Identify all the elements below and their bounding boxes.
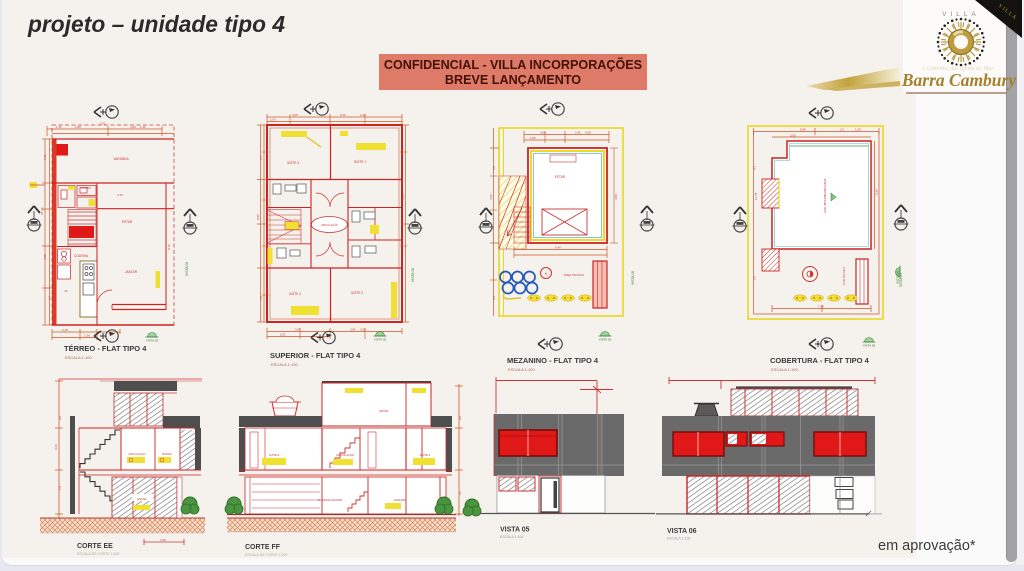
svg-text:1,80: 1,80	[530, 136, 536, 140]
svg-text:2,50: 2,50	[340, 113, 346, 117]
svg-text:11,75: 11,75	[754, 192, 758, 200]
svg-text:ÁREA TÉCNICA: ÁREA TÉCNICA	[564, 272, 585, 277]
svg-text:5,30: 5,30	[875, 189, 879, 195]
svg-text:ESCALA 1:100: ESCALA 1:100	[271, 362, 298, 367]
svg-text:3,10: 3,10	[43, 154, 47, 160]
svg-text:2,15: 2,15	[62, 328, 68, 332]
svg-text:2,9: 2,9	[58, 486, 62, 490]
svg-text:SUÍTE 2: SUÍTE 2	[351, 291, 363, 295]
svg-text:ESTAR: ESTAR	[555, 175, 566, 179]
svg-text:VISTA 06: VISTA 06	[411, 268, 415, 282]
svg-text:2,45: 2,45	[575, 131, 581, 135]
svg-text:K: K	[545, 271, 548, 276]
svg-text:VARANDA: VARANDA	[393, 498, 406, 502]
svg-text:3,1: 3,1	[492, 296, 496, 300]
svg-text:2,8: 2,8	[458, 416, 462, 420]
svg-text:VISTA 02: VISTA 02	[374, 338, 387, 342]
svg-text:2,8: 2,8	[58, 416, 62, 420]
svg-text:MEZANINO - FLAT TIPO 4: MEZANINO - FLAT TIPO 4	[507, 356, 599, 365]
svg-text:VISTA 02: VISTA 02	[146, 339, 159, 343]
svg-text:LAVABO: LAVABO	[81, 186, 91, 190]
svg-text:2,60: 2,60	[790, 134, 796, 138]
svg-text:LAJE TÉCNICA: LAJE TÉCNICA	[841, 266, 846, 285]
svg-text:CORTE EE: CORTE EE	[77, 543, 113, 550]
svg-text:TÉRREO - FLAT TIPO 4: TÉRREO - FLAT TIPO 4	[64, 344, 147, 353]
svg-text:8,05: 8,05	[256, 214, 260, 220]
svg-text:2,3: 2,3	[48, 296, 52, 300]
svg-text:4,50: 4,50	[614, 194, 618, 200]
svg-text:VARANDA: VARANDA	[113, 157, 129, 161]
svg-text:4,10: 4,10	[130, 125, 136, 129]
svg-text:JANTAR: JANTAR	[125, 270, 138, 274]
svg-text:3,30: 3,30	[160, 538, 166, 542]
svg-text:ESCALA 1:100: ESCALA 1:100	[65, 355, 92, 360]
svg-text:VISTA 05: VISTA 05	[599, 338, 612, 342]
svg-text:3,3: 3,3	[259, 156, 263, 160]
svg-text:CIRCULAÇÃO: CIRCULAÇÃO	[336, 452, 355, 457]
svg-text:VISTA 06: VISTA 06	[667, 528, 697, 535]
svg-text:1,15: 1,15	[56, 125, 62, 129]
svg-text:2,02: 2,02	[100, 122, 106, 126]
svg-text:2,90: 2,90	[75, 125, 81, 129]
svg-text:3,9: 3,9	[259, 296, 263, 300]
svg-text:ESCALA DE CORTE 1:100: ESCALA DE CORTE 1:100	[77, 552, 119, 556]
svg-text:SUÍTE 4: SUÍTE 4	[289, 292, 301, 296]
svg-text:3,0: 3,0	[458, 491, 462, 495]
svg-text:8,20: 8,20	[54, 444, 58, 450]
svg-text:SUÍTE 1: SUÍTE 1	[354, 160, 366, 164]
svg-text:SUÍTE 2: SUÍTE 2	[420, 453, 431, 457]
svg-text:COZINHA: COZINHA	[74, 254, 89, 258]
svg-text:1,30: 1,30	[855, 128, 861, 132]
svg-text:VILLA: VILLA	[942, 11, 980, 18]
svg-text:VISTA 05: VISTA 05	[863, 344, 876, 348]
svg-text:4,35: 4,35	[401, 194, 405, 200]
svg-text:4,65: 4,65	[489, 194, 493, 200]
svg-text:3,6: 3,6	[753, 276, 757, 280]
svg-text:5,80: 5,80	[800, 128, 806, 132]
svg-text:10,30: 10,30	[40, 207, 44, 215]
svg-text:VISTA 06: VISTA 06	[896, 271, 900, 284]
svg-text:ESTAR: ESTAR	[379, 409, 388, 413]
svg-text:COBERTURA - FLAT TIPO 4: COBERTURA - FLAT TIPO 4	[770, 356, 870, 365]
svg-text:VISTA 06: VISTA 06	[631, 271, 635, 285]
svg-text:2,0: 2,0	[840, 128, 844, 132]
svg-text:3,05: 3,05	[292, 113, 298, 117]
svg-text:5,40: 5,40	[555, 246, 561, 250]
svg-text:BANHO: BANHO	[162, 452, 171, 456]
svg-text:A5: A5	[64, 289, 68, 293]
svg-text:CORTE FF: CORTE FF	[245, 544, 281, 551]
svg-text:2,80: 2,80	[350, 328, 356, 332]
svg-text:SUÍTE 4: SUÍTE 4	[269, 453, 280, 457]
svg-text:VISTA 05: VISTA 05	[500, 527, 530, 534]
svg-text:COZINHA/JANTAR: COZINHA/JANTAR	[318, 498, 342, 502]
svg-text:ESCALA 1:100: ESCALA 1:100	[500, 535, 523, 539]
svg-text:SUPERIOR - FLAT TIPO 4: SUPERIOR - FLAT TIPO 4	[270, 351, 361, 360]
svg-text:1,30: 1,30	[140, 125, 146, 129]
svg-text:7,45: 7,45	[818, 305, 824, 309]
svg-text:1,36: 1,36	[84, 334, 90, 338]
svg-text:9,10: 9,10	[167, 244, 171, 250]
svg-text:ESCALA DE CORTE 1:100: ESCALA DE CORTE 1:100	[245, 553, 287, 557]
svg-text:ESCALA 1:100: ESCALA 1:100	[508, 367, 535, 372]
svg-text:1,00: 1,00	[270, 118, 276, 122]
svg-text:2,02: 2,02	[280, 333, 286, 337]
svg-text:4,25: 4,25	[43, 254, 47, 260]
svg-text:Barra Cambury: Barra Cambury	[901, 70, 1016, 90]
svg-text:ESCALA 1:100: ESCALA 1:100	[771, 367, 798, 372]
svg-text:4,1: 4,1	[753, 166, 757, 170]
svg-text:3,00: 3,00	[585, 131, 591, 135]
svg-text:2,9: 2,9	[492, 166, 496, 170]
svg-text:VISTA 06: VISTA 06	[185, 262, 189, 276]
svg-text:ESTAR: ESTAR	[137, 497, 146, 501]
svg-text:SUÍTE 3: SUÍTE 3	[287, 161, 299, 165]
svg-text:5,10: 5,10	[117, 193, 123, 197]
svg-text:ESCALA 1:100: ESCALA 1:100	[667, 537, 690, 541]
svg-text:ESTAR: ESTAR	[122, 220, 133, 224]
svg-text:LAJE IMPERMEABILIZADA: LAJE IMPERMEABILIZADA	[823, 178, 827, 213]
